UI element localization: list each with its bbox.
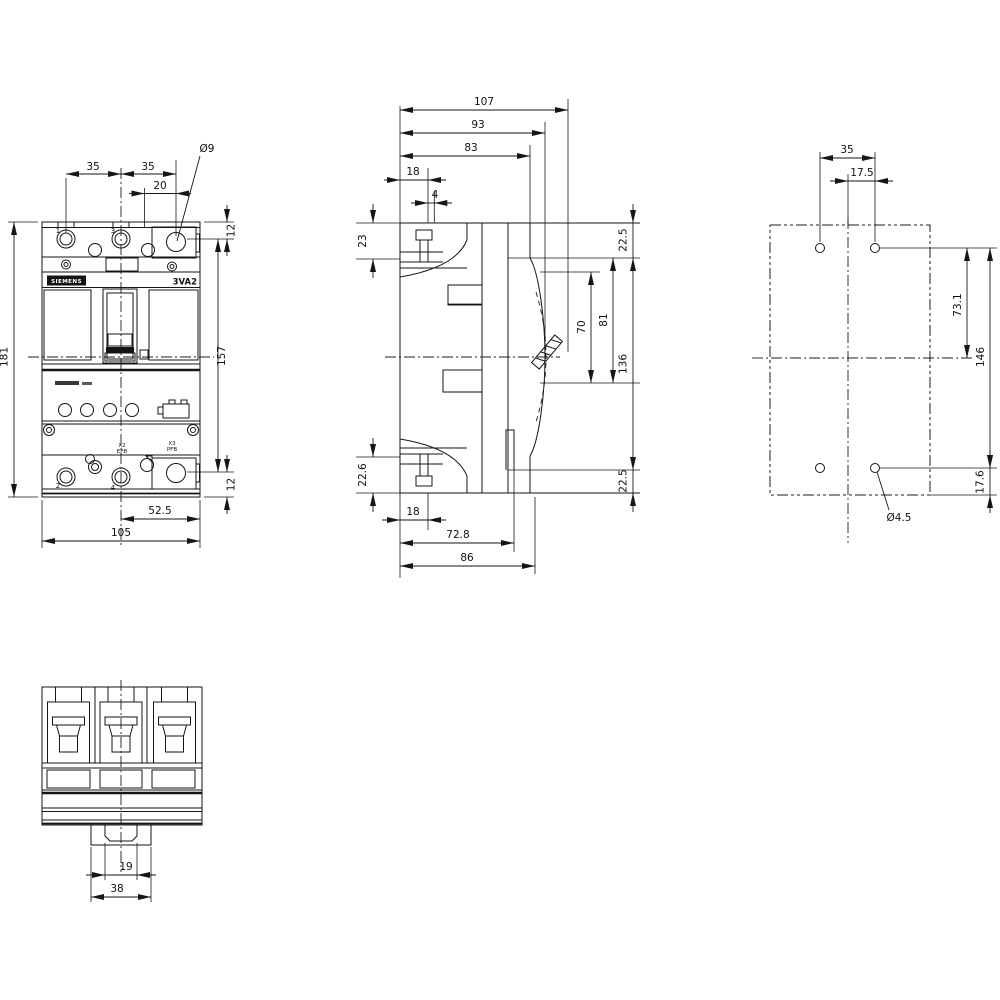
side-view-dimensions: 107 93 83 18 4 23 22.6 22.5 136 22.5 bbox=[356, 96, 640, 578]
dim-label-19: 19 bbox=[119, 861, 132, 873]
dim-label-dia4-5: Ø4.5 bbox=[887, 512, 912, 524]
front-connector-icon bbox=[158, 400, 189, 418]
side-view bbox=[385, 223, 640, 493]
dim-label-73-1: 73.1 bbox=[952, 293, 964, 316]
dimension-drawing: SIEMENS 3VA2 bbox=[0, 0, 1000, 1000]
dim-label-72-8: 72.8 bbox=[446, 529, 469, 541]
mounting-view: 35 17.5 73.1 146 17.6 Ø4.5 bbox=[752, 144, 997, 543]
dim-label-12-bottom: 12 bbox=[226, 478, 238, 491]
connector-label-x2-sub: EFB bbox=[117, 449, 128, 455]
dim-label-70: 70 bbox=[576, 320, 588, 333]
dim-label-20: 20 bbox=[153, 180, 166, 192]
bottom-pole-terminals bbox=[48, 687, 196, 763]
side-terminal-bottom bbox=[400, 439, 467, 493]
terminal-label-4: 4 bbox=[111, 484, 116, 492]
dim-label-35-left: 35 bbox=[86, 161, 99, 173]
dim-label-18-bottom: 18 bbox=[406, 506, 419, 518]
dim-label-38: 38 bbox=[110, 883, 123, 895]
mounting-hole bbox=[871, 464, 880, 473]
dim-label-18-top: 18 bbox=[406, 166, 419, 178]
dim-label-22-6: 22.6 bbox=[357, 463, 369, 487]
dim-label-107: 107 bbox=[474, 96, 494, 108]
dim-label-22-5-bottom: 22.5 bbox=[618, 469, 630, 492]
small-print-marks bbox=[55, 381, 79, 385]
dim-label-22-5-top: 22.5 bbox=[618, 228, 630, 251]
dim-label-93: 93 bbox=[471, 119, 484, 131]
dim-label-105: 105 bbox=[111, 527, 131, 539]
dimension-drawing-page: SIEMENS 3VA2 bbox=[0, 0, 1000, 1000]
dim-label-81: 81 bbox=[598, 313, 610, 326]
breaker-handle bbox=[103, 289, 137, 363]
front-view: SIEMENS 3VA2 bbox=[28, 168, 214, 548]
dim-label-181: 181 bbox=[0, 347, 11, 367]
dim-label-4: 4 bbox=[432, 189, 439, 201]
front-accessory-box-bottom bbox=[146, 456, 200, 489]
mounting-hole bbox=[816, 244, 825, 253]
dim-label-157: 157 bbox=[216, 346, 228, 366]
dim-label-17-6: 17.6 bbox=[975, 470, 987, 494]
mounting-hole bbox=[871, 244, 880, 253]
bottom-view: 19 38 bbox=[42, 680, 202, 902]
terminal-label-1: 1 bbox=[56, 227, 60, 235]
dim-label-17-5: 17.5 bbox=[850, 167, 873, 179]
side-terminal-top bbox=[400, 223, 467, 277]
model-label: 3VA2 bbox=[173, 278, 197, 288]
dim-label-136: 136 bbox=[618, 354, 630, 374]
mounting-hole bbox=[816, 464, 825, 473]
dim-label-23: 23 bbox=[357, 234, 369, 247]
dim-label-dia9: Ø9 bbox=[200, 143, 215, 155]
dim-label-35-right: 35 bbox=[141, 161, 154, 173]
terminal-label-2: 2 bbox=[56, 482, 60, 490]
dim-label-146: 146 bbox=[975, 347, 987, 367]
terminal-label-3: 3 bbox=[111, 227, 115, 235]
dim-label-86: 86 bbox=[460, 552, 474, 564]
dim-label-52-5: 52.5 bbox=[148, 505, 171, 517]
brand-label: SIEMENS bbox=[51, 279, 82, 285]
dim-label-12-top: 12 bbox=[226, 224, 238, 237]
connector-label-x3-sub: PFB bbox=[167, 447, 177, 453]
dim-label-83: 83 bbox=[464, 142, 477, 154]
handle-side-profile bbox=[532, 335, 563, 369]
dim-label-m35: 35 bbox=[840, 144, 853, 156]
